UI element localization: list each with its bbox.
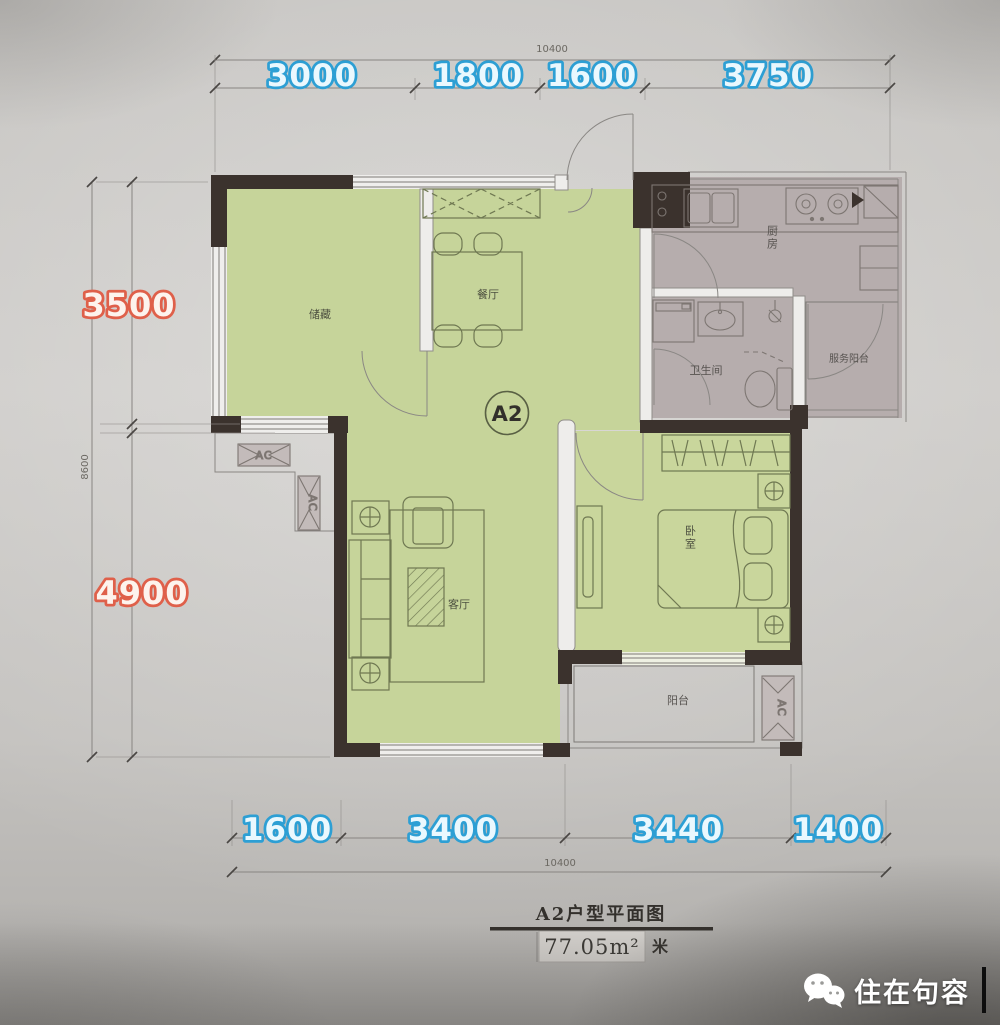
bedroom-south-window [622, 652, 745, 665]
storage-south-window [241, 416, 328, 433]
watermark-text: 住在句容 [854, 971, 970, 1010]
meter-label: 米 [652, 937, 669, 956]
top-dimensions: 10400 3000 1800 1600 3750 [210, 44, 895, 172]
bathroom-label: 卫生间 [690, 363, 723, 377]
left-total-dim: 8600 [80, 454, 91, 479]
living-bedroom-wall [558, 420, 575, 652]
ac-unit-balcony: AC [762, 676, 794, 740]
bottom-dimensions: 1600 3400 3440 1400 10400 [227, 764, 891, 877]
living-room-label: 客厅 [448, 597, 470, 611]
entry-jamb [555, 175, 568, 190]
watermark-cursor [982, 967, 986, 1013]
ac-label-2: AC [306, 494, 319, 511]
title-block: A2户型平面图 77.05m² 米 [490, 903, 713, 962]
living-south-window [379, 743, 543, 757]
kitchen-label: 厨房 [766, 225, 779, 251]
bath-service-wall [793, 296, 805, 407]
watermark: 住在句容 [802, 967, 986, 1013]
storage-east-wall [420, 189, 433, 351]
ac-unit-horizontal: AC [238, 444, 290, 466]
wechat-icon [802, 971, 846, 1009]
dim-bottom-3400: 3400 [408, 812, 498, 848]
balcony-label: 阳台 [667, 693, 689, 707]
ac-label-3: AC [775, 699, 788, 716]
area-value: 77.05m² [544, 935, 639, 959]
dim-left-3500: 3500 [82, 286, 175, 324]
living-room-floor [347, 428, 560, 747]
ac-label-1: AC [255, 449, 272, 462]
north-window [353, 175, 555, 189]
plan-title: A2户型平面图 [535, 903, 667, 925]
dim-bottom-3440: 3440 [633, 812, 723, 848]
unit-label: A2 [492, 402, 523, 426]
dim-top-3750: 3750 [723, 58, 813, 94]
coffee-table [408, 568, 444, 626]
storage-west-window [211, 247, 227, 416]
dim-bottom-1600: 1600 [242, 812, 332, 848]
dim-top-1800: 1800 [433, 58, 523, 94]
title-underline [490, 927, 713, 931]
storage-dining-hall-floor [227, 189, 652, 430]
service-balcony-label: 服务阳台 [829, 352, 869, 365]
dim-bottom-1400: 1400 [793, 812, 883, 848]
storage-label: 储藏 [309, 307, 331, 321]
floorplan-photo: AC AC AC 储藏 餐厅 厨房 卫生间 服务阳台 客厅 卧室 阳台 A2 [0, 0, 1000, 1025]
bedroom-label: 卧室 [684, 525, 697, 551]
ac-unit-vertical: AC [298, 476, 320, 530]
top-total-dim: 10400 [536, 44, 568, 55]
dining-label: 餐厅 [477, 287, 499, 301]
bottom-total-dim: 10400 [544, 858, 576, 869]
dim-top-3000: 3000 [267, 58, 357, 94]
hall-kitchen-wall [640, 228, 652, 422]
dim-top-1600: 1600 [547, 58, 637, 94]
kitchen-bath-divider [652, 288, 793, 297]
floorplan-drawing: AC AC AC 储藏 餐厅 厨房 卫生间 服务阳台 客厅 卧室 阳台 A2 [0, 0, 1000, 1025]
dim-left-4900: 4900 [95, 574, 188, 612]
